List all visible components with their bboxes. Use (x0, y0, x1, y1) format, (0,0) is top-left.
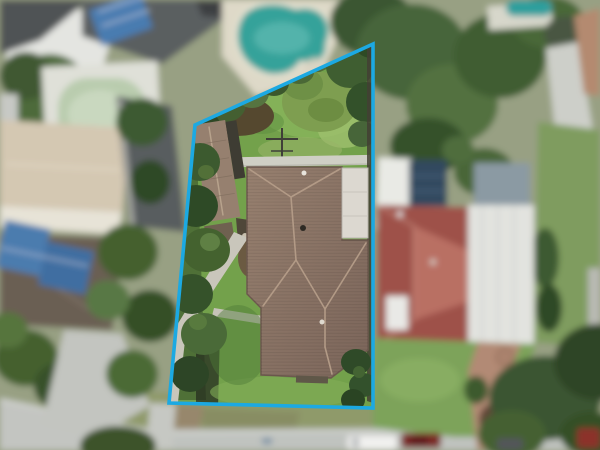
aerial-photo-stage (0, 0, 600, 450)
car-van-windshield (352, 437, 359, 448)
left-tree-row (130, 160, 170, 204)
lot-tree-highlight (200, 233, 220, 251)
car-red-roof (410, 436, 428, 445)
neighbour-pool-light (254, 22, 310, 54)
aerial-photo (0, 0, 600, 450)
left-tree-row (116, 98, 168, 146)
roof-vent (300, 225, 306, 231)
roof-vent (302, 171, 307, 176)
front-hedge-highlight (353, 366, 365, 378)
left-beige-roof (0, 120, 130, 212)
back-shrub-texture (308, 98, 344, 122)
porch-step (296, 375, 328, 383)
left-tree-row (122, 290, 178, 342)
car-red-corner (577, 428, 600, 448)
rn-driveway-dot (503, 355, 507, 359)
rn-solar-roof (409, 160, 447, 206)
rn-bluegray-roof (474, 163, 530, 209)
rn-tree-small (442, 136, 474, 164)
lot-tree-highlight (189, 314, 207, 330)
rn-vent (430, 259, 436, 265)
rn-white-roof (468, 205, 534, 344)
right-hedge (536, 284, 562, 332)
roof-vent (320, 320, 325, 325)
lot-tree (171, 356, 209, 392)
rn-lawn-light (380, 358, 460, 402)
left-tree-row (86, 280, 130, 320)
road-object (262, 438, 272, 444)
car-dark (497, 438, 523, 450)
right-hedge (531, 228, 559, 288)
rn-skylight (386, 296, 408, 330)
tr-pool (506, 0, 552, 16)
house-carport-roof (342, 168, 368, 238)
lot-tree-highlight (198, 165, 214, 179)
left-tree-row (106, 350, 158, 398)
rn-vent (397, 211, 403, 217)
left-tree-row (98, 224, 158, 280)
rn-lawn-bush (464, 376, 488, 404)
